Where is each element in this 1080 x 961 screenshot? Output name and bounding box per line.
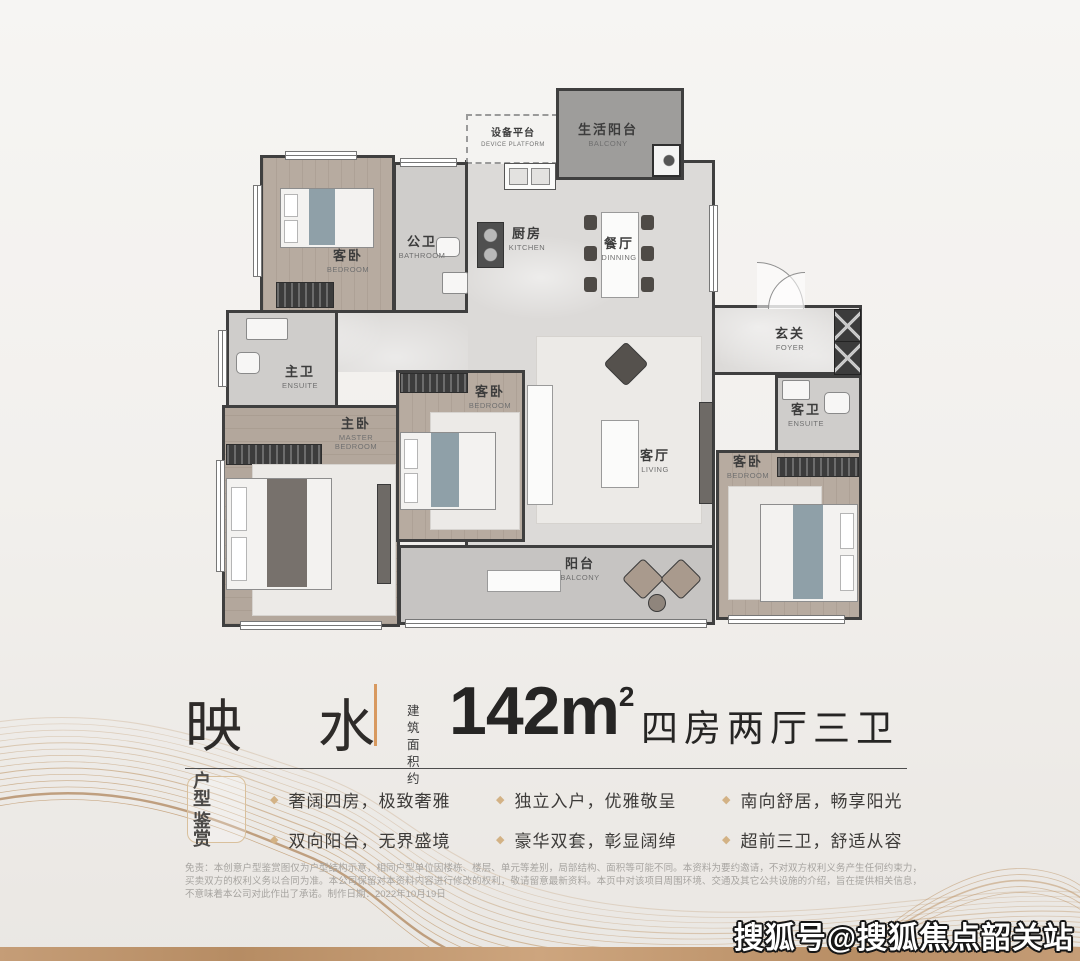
diamond-icon: ◆ [496, 833, 505, 846]
layout-description: 四房两厅三卫 [641, 698, 899, 752]
window [218, 330, 227, 387]
feature-list: ◆奢阔四房，极致奢雅 ◆独立入户，优雅敬呈 ◆南向舒居，畅享阳光 ◆双向阳台，无… [270, 779, 950, 859]
side-table-shape [648, 594, 666, 612]
chair-shape [584, 215, 597, 230]
washing-machine-shape [652, 144, 681, 177]
window [216, 460, 225, 572]
bed-shape [226, 478, 332, 590]
area-value: 142m2 [449, 672, 635, 750]
badge-huxing-jianshang: 户 型 鉴 赏 [187, 776, 246, 843]
title-divider [374, 684, 377, 746]
feature-item: ◆南向舒居，畅享阳光 [722, 779, 948, 819]
chair-shape [641, 215, 654, 230]
sofa-shape [527, 385, 553, 505]
wardrobe-shape [276, 282, 334, 308]
poster-page: 设备平台DEVICE PLATFORM 生活阳台BALCONY 客卧BEDROO… [0, 0, 1080, 961]
shoe-cabinet-shape [834, 341, 861, 375]
window [405, 619, 707, 628]
bench-shape [487, 570, 561, 592]
diamond-icon: ◆ [270, 793, 279, 806]
chair-shape [584, 277, 597, 292]
room-device-platform [466, 114, 558, 164]
feature-item: ◆豪华双套，彰显阔绰 [496, 819, 722, 859]
feature-item: ◆独立入户，优雅敬呈 [496, 779, 722, 819]
unit-name: 映 水 [185, 681, 405, 763]
kitchen-sink-shape [504, 163, 556, 190]
disclaimer-text: 免责：本创意户型鉴赏图仅为户型结构示意，相同户型单位因楼栋、楼层、单元等差别，局… [185, 862, 922, 901]
window [400, 158, 457, 167]
area-exponent: 2 [619, 681, 635, 712]
tv-console-shape [377, 484, 391, 584]
diamond-icon: ◆ [496, 793, 505, 806]
bed-shape [400, 432, 496, 510]
feature-item: ◆超前三卫，舒适从容 [722, 819, 948, 859]
coffee-table-shape [601, 420, 639, 488]
window [253, 185, 262, 277]
floor-plan: 设备平台DEVICE PLATFORM 生活阳台BALCONY 客卧BEDROO… [0, 0, 1080, 660]
area-label: 建 筑 面积约 [407, 703, 431, 788]
toilet-shape [436, 237, 460, 257]
window [285, 151, 357, 160]
toilet-shape [824, 392, 850, 414]
title-underline [185, 768, 907, 769]
sink-shape [442, 272, 468, 294]
dining-table-shape [601, 212, 639, 298]
shoe-cabinet-shape [834, 309, 861, 343]
tv-console-shape [699, 402, 713, 504]
diamond-icon: ◆ [722, 793, 731, 806]
bed-shape [760, 504, 858, 602]
chair-shape [584, 246, 597, 261]
feature-item: ◆奢阔四房，极致奢雅 [270, 779, 496, 819]
wardrobe-shape [777, 457, 859, 477]
window [240, 621, 382, 630]
chair-shape [641, 277, 654, 292]
stove-shape [477, 222, 504, 268]
window [709, 205, 718, 292]
wardrobe-shape [226, 444, 322, 465]
diamond-icon: ◆ [722, 833, 731, 846]
diamond-icon: ◆ [270, 833, 279, 846]
window [728, 615, 845, 624]
watermark-sohu: 搜狐号@搜狐焦点韶关站 [734, 913, 1074, 957]
toilet-shape [236, 352, 260, 374]
feature-item: ◆双向阳台，无界盛境 [270, 819, 496, 859]
wardrobe-shape [400, 373, 468, 393]
bed-shape [280, 188, 374, 248]
chair-shape [641, 246, 654, 261]
sink-shape [782, 380, 810, 400]
sink-shape [246, 318, 288, 340]
